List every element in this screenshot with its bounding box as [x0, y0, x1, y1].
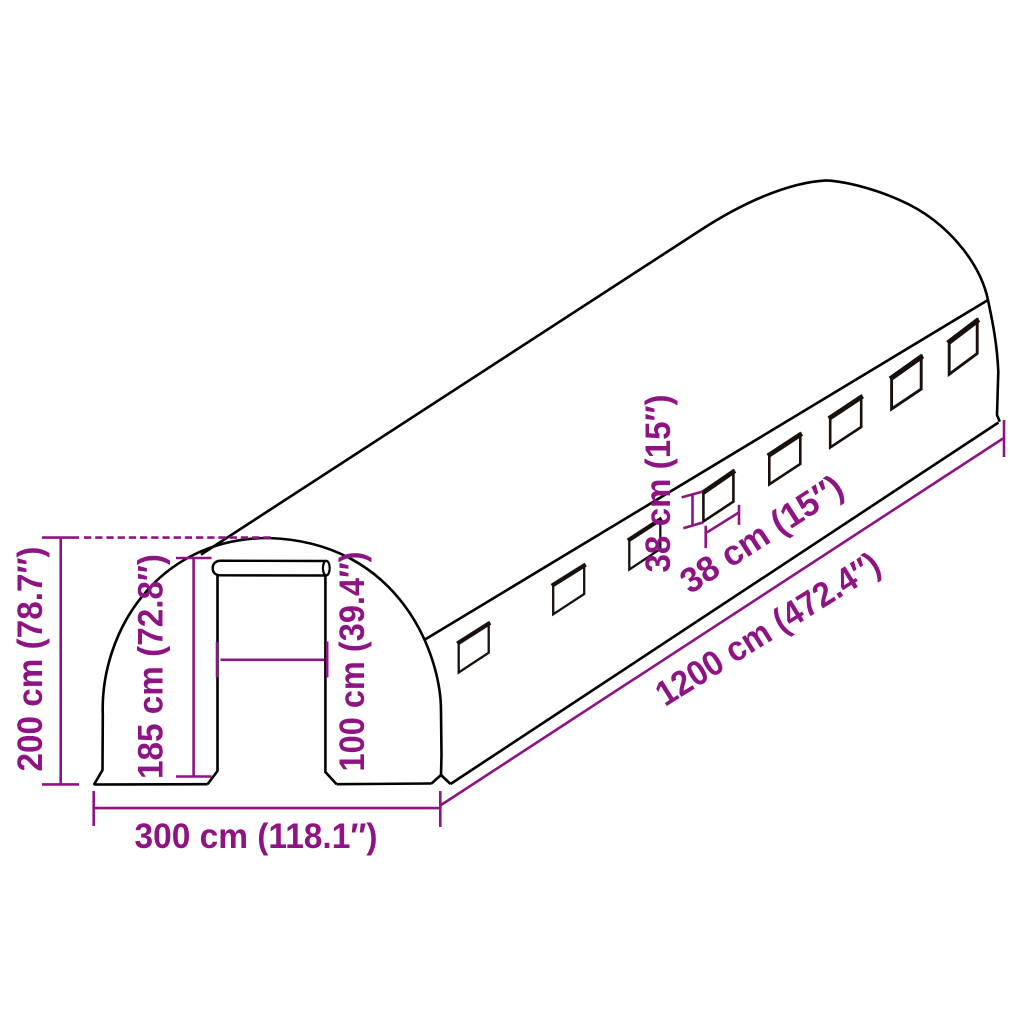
svg-text:38 cm (15″): 38 cm (15″)	[639, 395, 678, 573]
svg-text:200 cm (78.7″): 200 cm (78.7″)	[11, 547, 50, 772]
svg-text:100 cm (39.4″): 100 cm (39.4″)	[333, 552, 372, 772]
svg-text:300 cm (118.1″): 300 cm (118.1″)	[135, 817, 378, 856]
svg-text:185 cm (72.8″): 185 cm (72.8″)	[132, 554, 171, 779]
